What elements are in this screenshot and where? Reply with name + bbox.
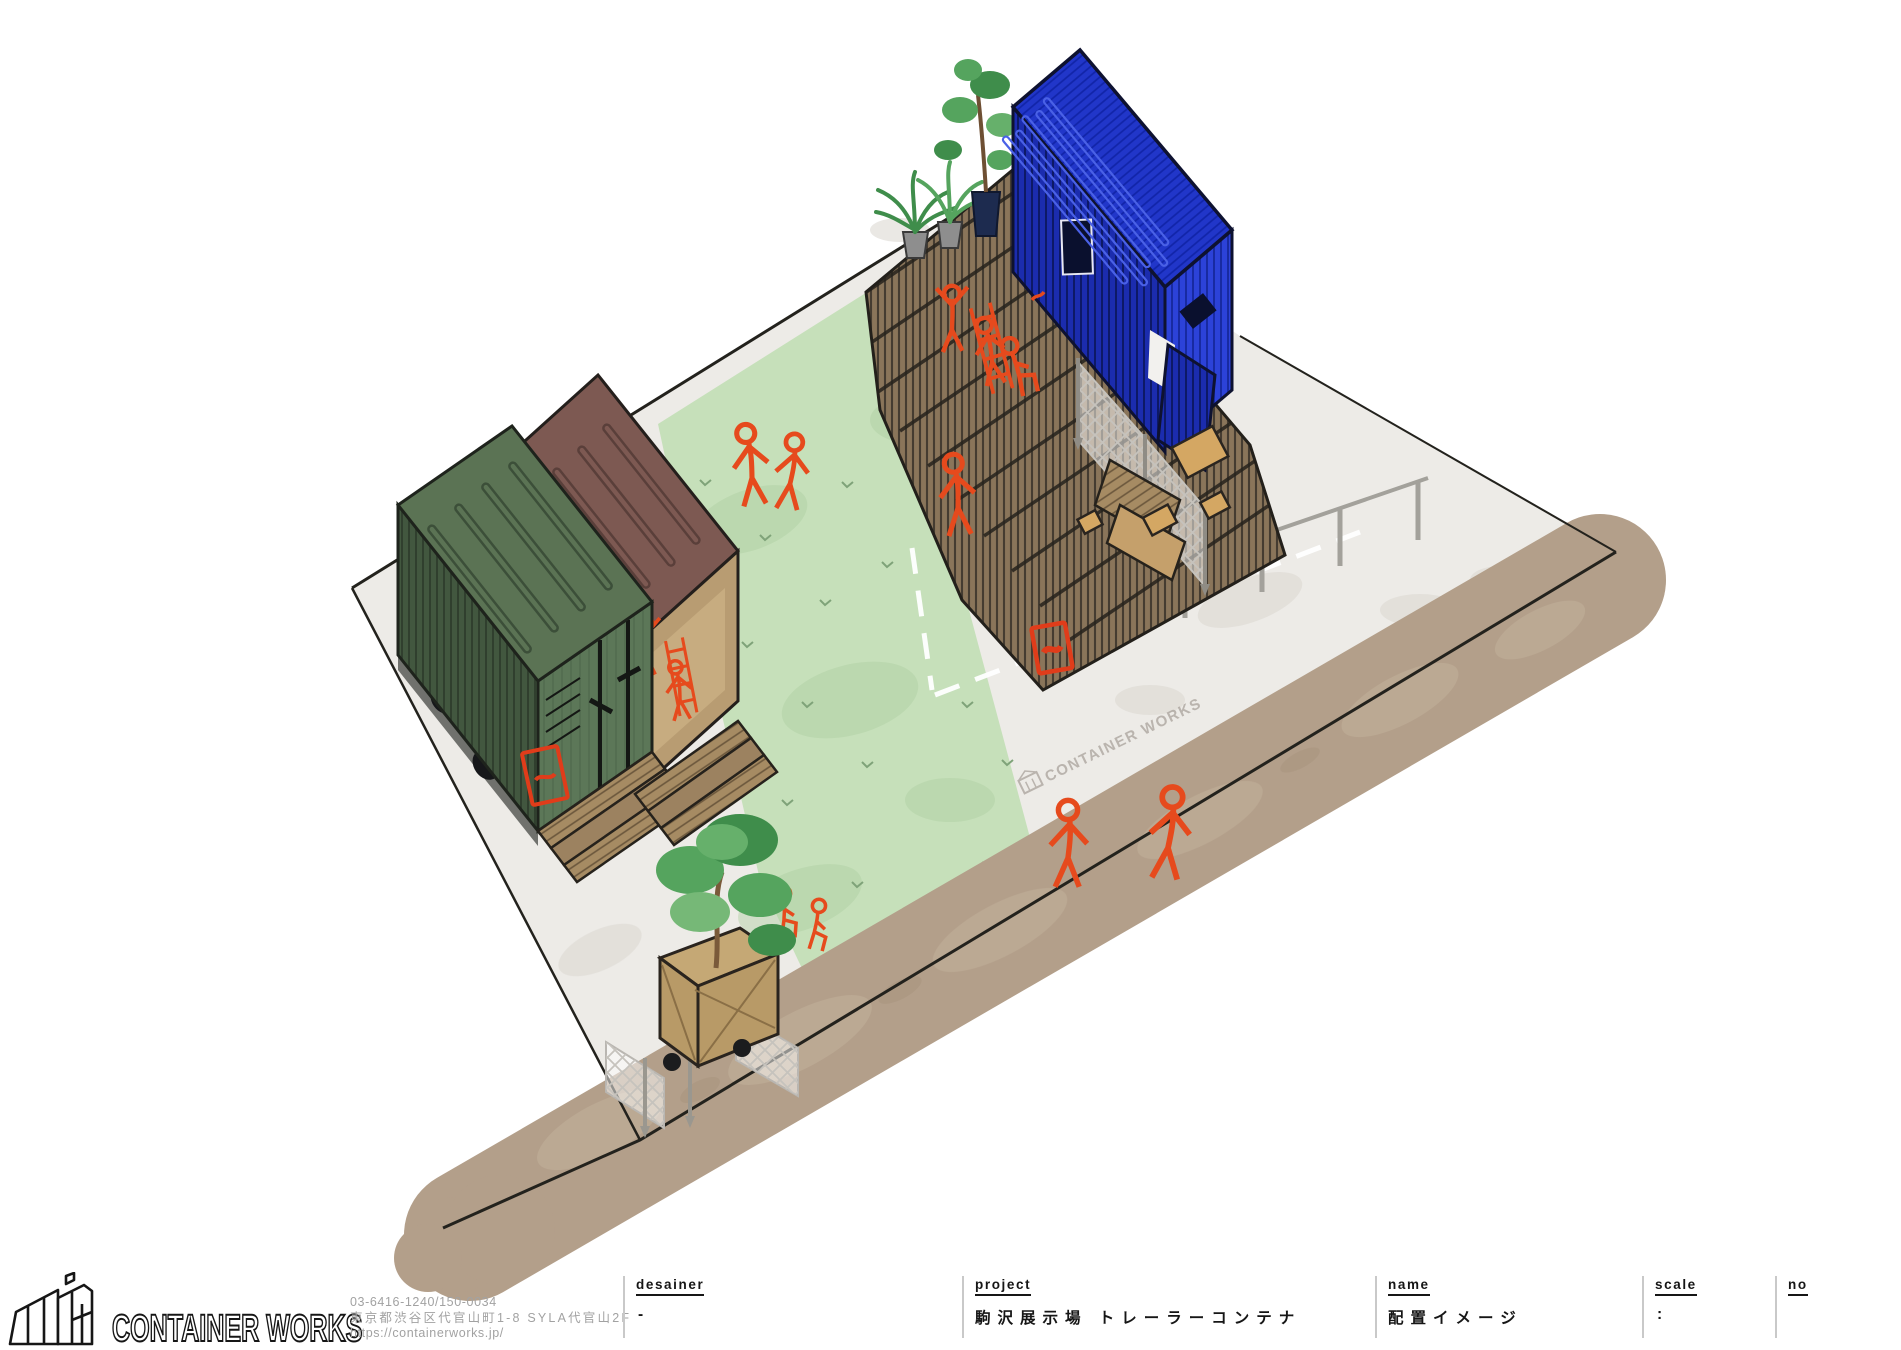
field-value-scale: : bbox=[1657, 1306, 1662, 1324]
tall-tree-foliage bbox=[934, 59, 1018, 170]
contact-phone-postal: 03-6416-1240/150-0034 bbox=[350, 1295, 631, 1311]
field-label-scale: scale bbox=[1655, 1277, 1697, 1296]
field-label-project: project bbox=[975, 1277, 1031, 1296]
field-value-project: 駒沢展示場 トレーラーコンテナ bbox=[975, 1306, 1301, 1328]
contact-url: https://containerworks.jp/ bbox=[350, 1326, 631, 1342]
divider bbox=[1375, 1276, 1377, 1338]
field-label-desainer: desainer bbox=[636, 1277, 704, 1296]
divider bbox=[1775, 1276, 1777, 1338]
field-value-desainer: - bbox=[638, 1306, 643, 1324]
field-value-name: 配置イメージ bbox=[1388, 1306, 1523, 1328]
divider bbox=[962, 1276, 964, 1338]
drawing-sheet: CONTAINER WORKS bbox=[0, 0, 1901, 1350]
divider bbox=[623, 1276, 625, 1338]
contact-info: 03-6416-1240/150-0034 東京都渋谷区代官山町1-8 SYLA… bbox=[350, 1295, 631, 1342]
field-label-name: name bbox=[1388, 1277, 1430, 1296]
contact-address: 東京都渋谷区代官山町1-8 SYLA代官山2F bbox=[350, 1311, 631, 1327]
field-label-no: no bbox=[1788, 1277, 1808, 1296]
brand-logo-icon bbox=[6, 1272, 108, 1348]
divider bbox=[1642, 1276, 1644, 1338]
site-plan-illustration: CONTAINER WORKS bbox=[0, 0, 1901, 1350]
brand-wordmark: CONTAINER WORKS bbox=[112, 1308, 362, 1350]
